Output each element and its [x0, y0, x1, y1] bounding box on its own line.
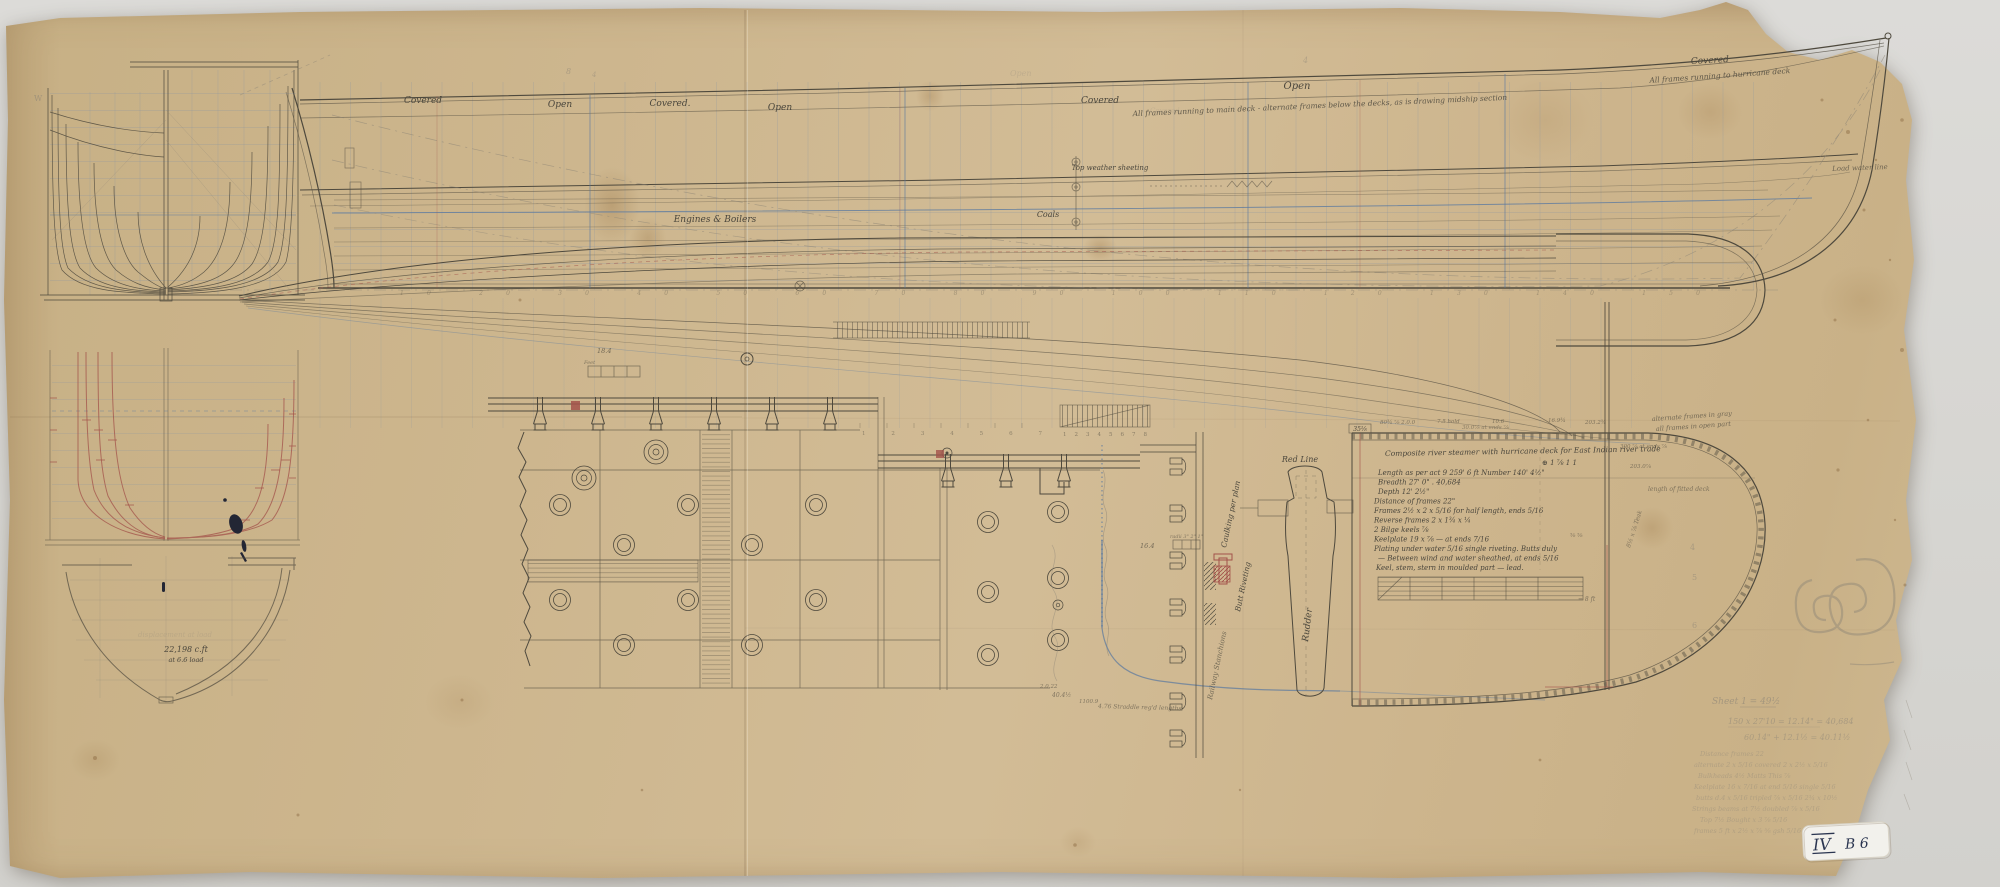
spec-line: 2 Bilge keels ⅞ [1373, 526, 1429, 534]
spec-line: Breadth 27' 0" . 40,684 [1377, 479, 1461, 487]
spec-line: Reverse frames 2 x 1¾ x ¼ [1373, 517, 1471, 525]
ghost-pencil-label: Open [1010, 69, 1032, 78]
radii-label: radii 3" 2" 1" [1170, 534, 1203, 540]
memo-line: Bulkheads 4½ Matts This ⅞ [1697, 772, 1791, 780]
rudder-detail: Red Line Rudder [1240, 455, 1353, 696]
side-note: = 8 ft [1578, 596, 1596, 603]
red-detail-mark [571, 401, 580, 410]
caulking-label: Caulking per plan [1219, 480, 1242, 549]
memo-line: Top 7½ Bought x 3 ⅞ 5/16 [1700, 816, 1787, 824]
tick-digits: 1 2 3 4 5 6 7 [862, 431, 1043, 437]
spec-line: — Between wind and water sheathed, at en… [1378, 555, 1559, 563]
memo-line: Distance frames 22 [1699, 750, 1764, 758]
rudder-label: Rudder [1301, 607, 1315, 643]
station-digit: 5 [1692, 573, 1697, 582]
deck-zone-label: Open [548, 100, 572, 110]
calc-note: 150 x 27'10 = 12.14" = 40,684 [1728, 717, 1854, 726]
spec-line: Distance of frames 22" [1373, 498, 1455, 506]
waterline-label: Load water line [1831, 163, 1888, 173]
side-note: 300 ⅞ at ends ⅞ [1620, 444, 1667, 450]
deck-zone-label: Covered [1081, 96, 1119, 106]
bottom-note: 4.76 Straddle reg'd lengths [1097, 703, 1182, 712]
stern-framing-plan: Composite river steamer with hurricane d… [1039, 409, 1765, 712]
sheer-plan: Covered Open Covered. Open Covered Open … [286, 33, 1891, 297]
deck-zone-label: Open [768, 103, 792, 113]
pencil-mark: 4 [591, 71, 596, 79]
deck-zone-label: Covered [404, 96, 442, 106]
spec-mark: ⊕ 1 ⅞ 1 1 [1542, 459, 1577, 467]
station-digit: 4 [1690, 543, 1695, 552]
bottom-note: 2.0.22 [1039, 684, 1058, 690]
stanchion-label: Railway Stanchions [1206, 630, 1229, 701]
memo-line: Strings beams at 7½ doubled ⅞ x 5/16 [1692, 805, 1820, 813]
load-note: at 6.6 load [169, 656, 204, 664]
spec-block: Composite river steamer with hurricane d… [1373, 444, 1661, 572]
archive-label-roman: IV [1812, 834, 1833, 854]
spec-line: Plating under water 5/16 single riveting… [1373, 545, 1558, 553]
coals-label: Coals [1037, 210, 1059, 219]
ghost-pencil-label: Covered [1150, 107, 1180, 115]
side-note: 203.0⅞ [1629, 464, 1652, 470]
corner-box-label: 35⅛ [1353, 426, 1367, 433]
body-plan-aft-fore: W [34, 55, 330, 301]
archive-sticker: IV B 6 [1802, 821, 1891, 862]
red-line-label: Red Line [1281, 455, 1318, 464]
pencil-mark: 8 [566, 67, 571, 76]
spec-line: Frames 2½ x 2 x 5/16 for half length, en… [1373, 507, 1544, 515]
bottom-note: 1100.9 [1079, 699, 1099, 705]
spec-line: Keelplate 19 x ⅞ — at ends 7/16 [1373, 536, 1490, 544]
deck-zone-label: Covered [1691, 55, 1730, 67]
bottom-note: 40.4½ [1051, 692, 1071, 699]
length-note: length of fitted deck [1648, 486, 1710, 493]
sheeting-label: Top weather sheeting [1072, 164, 1149, 172]
station-numbers: 10 20 30 40 50 60 70 80 90 100 110 120 1… [400, 290, 1700, 297]
drawing-layer: Covered Open Covered. Open Covered Open … [0, 0, 2000, 887]
red-detail-mark [936, 450, 944, 458]
volume-note: 22,198 c.ft [163, 645, 209, 654]
dim-label: 18.4 [597, 347, 611, 355]
body-plan-pencil: 22,198 c.ft at 6.6 load displacement at … [62, 556, 296, 703]
spec-line: Keel, stem, stern in moulded part — lead… [1375, 564, 1524, 572]
feet-scale-label: Feet [583, 360, 596, 366]
teak-note: 8½ x ⅞ Teak [1625, 509, 1644, 548]
sheet-note: Sheet 1 = 49½ [1712, 696, 1780, 707]
archive-label-rest: B 6 [1844, 836, 1870, 853]
dim-label: 16.4 [1140, 542, 1154, 550]
scanned-ship-draught-photo: Covered Open Covered. Open Covered Open … [0, 0, 2000, 887]
waterline-letter: W [34, 94, 43, 103]
red-bolt-detail [1214, 554, 1232, 584]
memo-line: frames 5 ft x 2½ x ⅞ ⅝ gsh 5/16 [1693, 827, 1801, 835]
memo-line: alternate 2 x 5/16 covered 2 x 2½ x 5/16 [1694, 761, 1828, 769]
pencil-mark: 4 [1302, 56, 1308, 65]
memo-line: Keelplate 16 x 7/16 at end 5/16 single 5… [1693, 783, 1836, 791]
dim-note: 30.0⅞ at ends ⅞ [1462, 425, 1509, 431]
station-digit: 6 [1692, 621, 1697, 630]
deck-zone-label: Open [1284, 81, 1311, 92]
pencil-doodle [1796, 559, 1895, 665]
deck-zone-label: Covered. [650, 99, 691, 109]
side-note: ⅝ ⅝ [1570, 533, 1583, 539]
spec-line: Length as per act 9 259' 6 ft Number 140… [1377, 469, 1545, 477]
station-digit: 7 [1689, 648, 1694, 657]
calc-note: 60.14" + 12.1½ = 40.11½ [1744, 733, 1850, 742]
memo-line: butts d.4 x 5/16 tripled ⅞ x 5/16 2¾ x 1… [1696, 794, 1837, 802]
comb-scale-digits: 1 2 3 4 5 6 7 8 [1063, 432, 1148, 438]
spec-line: Depth 12' 2½" [1377, 488, 1429, 496]
body-plan-red [45, 348, 300, 592]
ghost-pencil-note: displacement at load [138, 631, 212, 639]
